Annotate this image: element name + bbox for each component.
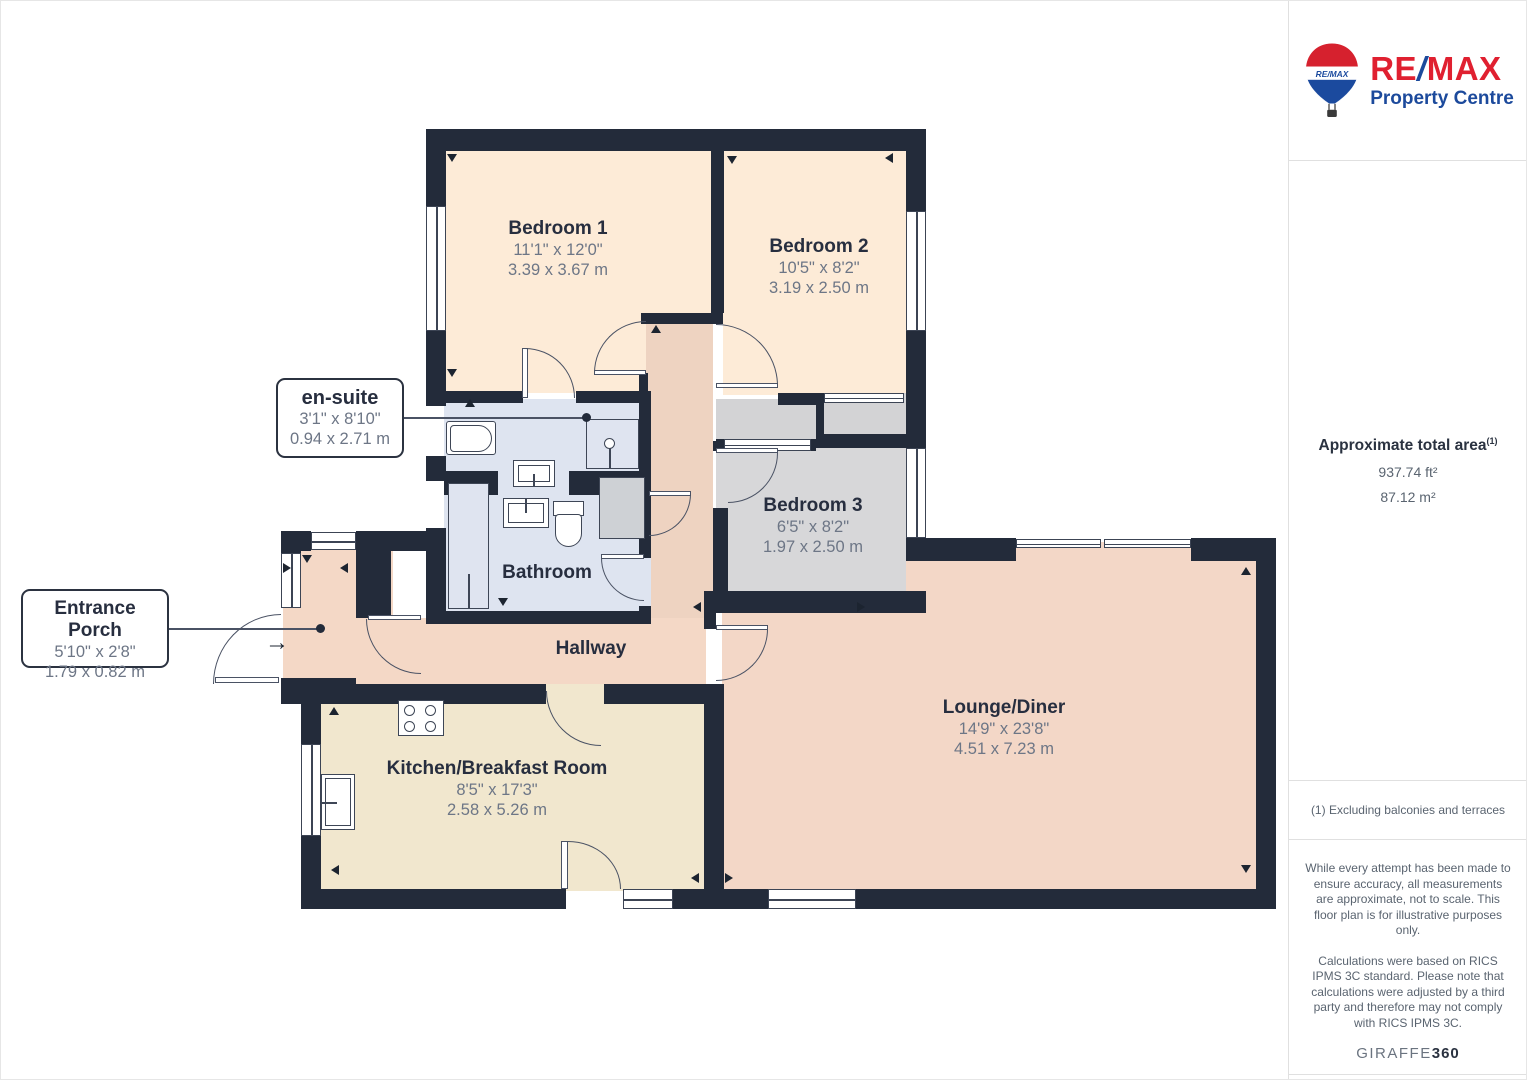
- door-arrow: [340, 563, 348, 573]
- cupboard-floor: [599, 477, 645, 539]
- credit-suffix: 360: [1432, 1045, 1460, 1062]
- wall: [906, 331, 926, 448]
- door-arrow: [725, 873, 733, 883]
- wordmark-re: RE: [1370, 50, 1417, 87]
- total-area-section: Approximate total area(1) 937.74 ft² 87.…: [1289, 161, 1527, 781]
- sliding-door: [824, 393, 904, 403]
- room-dim-imperial: 11'1" x 12'0": [508, 240, 608, 260]
- bedroom2-label: Bedroom 2 10'5" x 8'2" 3.19 x 2.50 m: [769, 236, 869, 298]
- wall: [639, 373, 648, 393]
- door-arrow: [447, 369, 457, 377]
- wall: [356, 684, 546, 704]
- room-dim-imperial: 14'9" x 23'8": [943, 719, 1065, 739]
- room-name: Kitchen/Breakfast Room: [387, 758, 608, 780]
- door-arrow: [885, 153, 893, 163]
- wall: [704, 613, 716, 629]
- wall: [704, 684, 724, 889]
- room-dim-imperial: 5'10" x 2'8": [27, 642, 163, 662]
- window: [623, 889, 673, 909]
- leader-dot: [582, 413, 591, 422]
- wall: [1191, 538, 1276, 561]
- remax-balloon-icon: RE/MAX: [1302, 37, 1362, 125]
- door-arrow: [302, 555, 312, 563]
- wall: [1256, 538, 1276, 909]
- total-area-imperial: 937.74 ft²: [1378, 464, 1437, 480]
- info-sidebar: RE/MAX RE/MAX Property Centre Approximat…: [1288, 1, 1527, 1080]
- bedroom1-label: Bedroom 1 11'1" x 12'0" 3.39 x 3.67 m: [508, 218, 608, 280]
- corridor-floor: [646, 323, 713, 623]
- window: [426, 206, 446, 331]
- brand-wordmark: RE/MAX: [1370, 52, 1514, 86]
- window: [1016, 539, 1101, 548]
- wordmark-slash: /: [1417, 50, 1427, 87]
- total-area-footnote-ref: (1): [1486, 436, 1497, 446]
- kitchen-label: Kitchen/Breakfast Room 8'5" x 17'3" 2.58…: [387, 758, 608, 820]
- floor-plan: Bedroom 1 11'1" x 12'0" 3.39 x 3.67 m Be…: [1, 1, 1288, 1080]
- footnote: (1) Excluding balconies and terraces: [1289, 781, 1527, 840]
- wall: [356, 551, 391, 618]
- door-arrow: [329, 707, 339, 715]
- room-name: Lounge/Diner: [943, 697, 1065, 719]
- wall: [641, 313, 723, 324]
- room-name: Bathroom: [502, 562, 592, 584]
- wall: [301, 889, 566, 909]
- room-name: Hallway: [556, 638, 627, 660]
- sink: [503, 498, 549, 528]
- wardrobe-a-floor: [716, 399, 816, 443]
- total-area-title: Approximate total area(1): [1319, 436, 1498, 455]
- total-area-title-text: Approximate total area: [1319, 437, 1487, 454]
- brand-logo: RE/MAX RE/MAX Property Centre: [1289, 1, 1527, 161]
- wall: [426, 611, 651, 624]
- hallway-label: Hallway: [556, 638, 627, 660]
- sink: [513, 460, 555, 487]
- door-arrow: [651, 325, 661, 333]
- door-arrow: [693, 602, 701, 612]
- room-dim-imperial: 3'1" x 8'10": [282, 409, 398, 429]
- room-dim-imperial: 6'5" x 8'2": [763, 517, 863, 537]
- wall: [426, 129, 926, 151]
- wall: [673, 889, 704, 909]
- wall: [426, 151, 446, 206]
- ensuite-callout: en-suite 3'1" x 8'10" 0.94 x 2.71 m: [276, 378, 404, 458]
- window: [906, 448, 926, 538]
- room-dim-metric: 2.58 x 5.26 m: [387, 800, 608, 820]
- room-dim-metric: 1.79 x 0.82 m: [27, 662, 163, 682]
- room-dim-metric: 1.97 x 2.50 m: [763, 537, 863, 557]
- window: [281, 553, 301, 608]
- wall: [906, 538, 1016, 561]
- wall: [444, 391, 523, 403]
- brand-tagline: Property Centre: [1370, 88, 1514, 110]
- door-arrow: [465, 399, 475, 407]
- leader-dot: [316, 624, 325, 633]
- credit-name: GIRAFFE: [1356, 1045, 1432, 1062]
- room-dim-imperial: 8'5" x 17'3": [387, 780, 608, 800]
- room-name: Bedroom 3: [763, 495, 863, 517]
- bathroom-label: Bathroom: [502, 562, 592, 584]
- door-arrow: [283, 563, 291, 573]
- room-name: Entrance Porch: [27, 598, 163, 642]
- leader-line: [401, 417, 585, 419]
- shower: [586, 419, 639, 469]
- room-name: Bedroom 2: [769, 236, 869, 258]
- bedroom3-label: Bedroom 3 6'5" x 8'2" 1.97 x 2.50 m: [763, 495, 863, 557]
- porch-callout: Entrance Porch 5'10" x 2'8" 1.79 x 0.82 …: [21, 589, 169, 668]
- lounge-label: Lounge/Diner 14'9" x 23'8" 4.51 x 7.23 m: [943, 697, 1065, 759]
- wall: [711, 149, 724, 313]
- wall: [906, 151, 926, 211]
- room-dim-metric: 3.19 x 2.50 m: [769, 278, 869, 298]
- window: [301, 744, 321, 836]
- room-dim-metric: 0.94 x 2.71 m: [282, 429, 398, 449]
- door-arrow: [1241, 567, 1251, 575]
- stove: [398, 700, 444, 736]
- wall: [856, 889, 1276, 909]
- door-arrow: [727, 156, 737, 164]
- wall: [301, 684, 321, 744]
- wall: [816, 434, 906, 448]
- window: [1104, 539, 1191, 548]
- room-dim-metric: 3.39 x 3.67 m: [508, 260, 608, 280]
- room-dim-imperial: 10'5" x 8'2": [769, 258, 869, 278]
- svg-text:RE/MAX: RE/MAX: [1316, 68, 1350, 78]
- room-dim-metric: 4.51 x 7.23 m: [943, 739, 1065, 759]
- room-name: en-suite: [282, 387, 398, 409]
- entry-arrow-icon: →: [265, 631, 289, 655]
- disclaimer-1: While every attempt has been made to ens…: [1305, 861, 1511, 939]
- door-leaf: [561, 841, 568, 889]
- giraffe360-credit: GIRAFFE360: [1305, 1046, 1511, 1062]
- wall: [356, 531, 446, 551]
- brand-text: RE/MAX Property Centre: [1370, 52, 1514, 110]
- disclaimer-2: Calculations were based on RICS IPMS 3C …: [1305, 954, 1511, 1032]
- wall: [426, 331, 446, 406]
- door-arrow: [1241, 865, 1251, 873]
- window: [311, 532, 356, 550]
- disclaimer-section: While every attempt has been made to ens…: [1289, 840, 1527, 1075]
- door-arrow: [498, 598, 508, 606]
- door-arrow: [447, 154, 457, 162]
- shower-enclosure: [448, 483, 489, 609]
- window: [906, 211, 926, 331]
- wall: [713, 508, 728, 593]
- door-arrow: [691, 873, 699, 883]
- wall: [704, 591, 926, 613]
- room-name: Bedroom 1: [508, 218, 608, 240]
- door-arrow: [857, 602, 865, 612]
- wall: [604, 684, 704, 704]
- window: [768, 889, 856, 909]
- kitchen-sink: [321, 774, 355, 830]
- leader-line: [167, 628, 319, 630]
- wall: [704, 889, 768, 909]
- wall: [426, 456, 446, 481]
- wordmark-max: MAX: [1427, 50, 1502, 87]
- floorplan-page: Bedroom 1 11'1" x 12'0" 3.39 x 3.67 m Be…: [0, 0, 1527, 1080]
- bathtub: [446, 421, 496, 455]
- door-arrow: [331, 865, 339, 875]
- toilet-bowl: [555, 514, 582, 547]
- wall: [281, 531, 301, 553]
- total-area-metric: 87.12 m²: [1380, 489, 1435, 505]
